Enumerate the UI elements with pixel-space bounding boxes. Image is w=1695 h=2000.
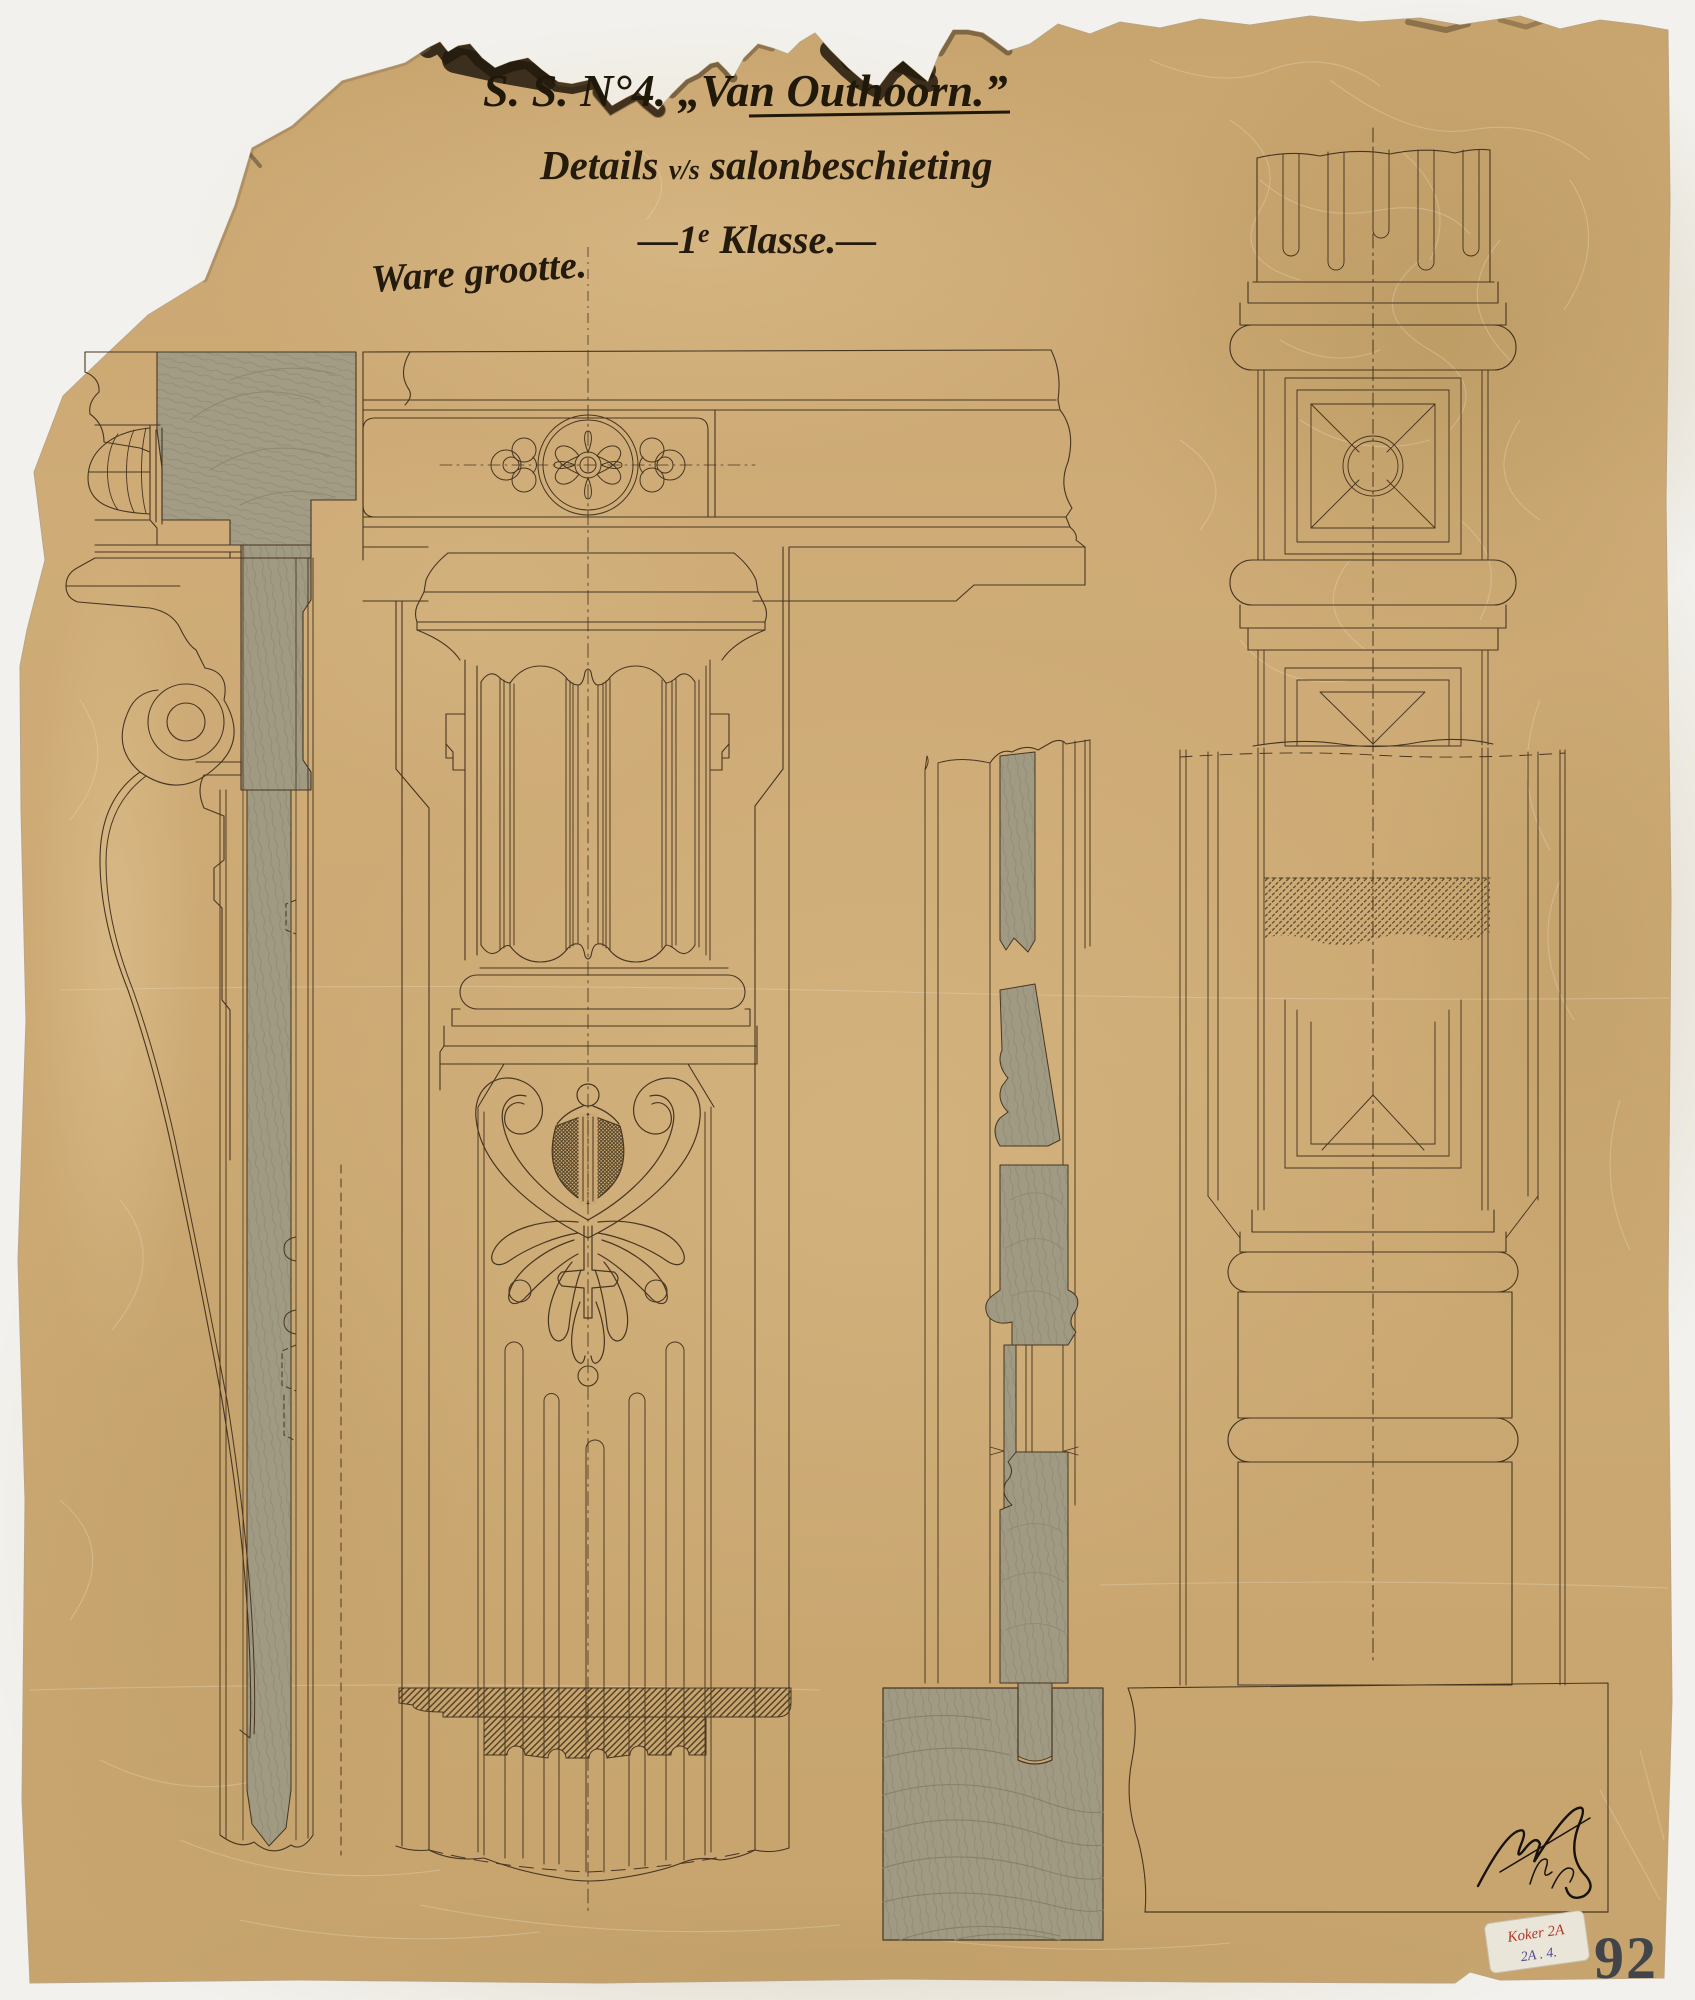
svg-text:S. S. N°4. „Van Outhoorn.”: S. S. N°4. „Van Outhoorn.” bbox=[483, 65, 1008, 116]
svg-text:—1e Klasse.—: —1e Klasse.— bbox=[637, 217, 876, 262]
svg-text:92: 92 bbox=[1594, 1925, 1658, 1991]
svg-text:Details v/s salonbeschieting: Details v/s salonbeschieting bbox=[539, 142, 993, 188]
